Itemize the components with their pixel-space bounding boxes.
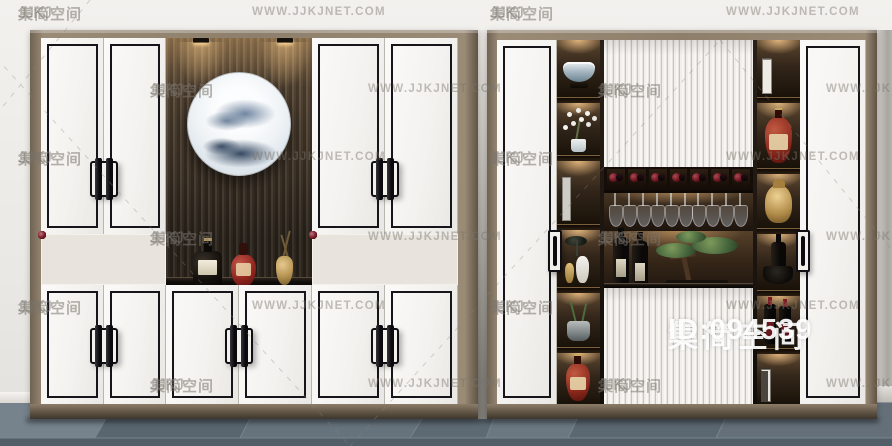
watermark-url-text: WWW.JJKJNET.COM <box>726 151 860 163</box>
watermark-layer: JJKJ 集简空间WWW.JJKJNET.COMJJKJ 集简空间WWW.JJK… <box>0 0 892 446</box>
watermark-url-text: WWW.JJKJNET.COM <box>368 231 502 243</box>
watermark-logo-text: JJKJ 集简空间 <box>598 228 662 249</box>
watermark-logo-text: JJKJ 集简空间 <box>150 228 214 249</box>
watermark-url-text: WWW.JJKJNET.COM <box>252 151 386 163</box>
watermark-url-text: WWW.JJKJNET.COM <box>252 6 386 18</box>
watermark-url-text: WWW.JJKJNET.COM <box>368 378 502 390</box>
watermark-logo-text: JJKJ 集简空间 <box>150 375 214 396</box>
watermark-logo-text: JJKJ 集简空间 <box>150 80 214 101</box>
watermark-logo-text: JJKJ 集简空间 <box>490 3 554 24</box>
watermark-logo-text: JJKJ 集简空间 <box>598 80 662 101</box>
watermark-logo-text: JJKJ 集简空间 <box>490 297 554 318</box>
watermark-logo-text: JJKJ 集简空间 <box>18 148 82 169</box>
watermark-url-text: WWW.JJKJNET.COM <box>368 83 502 95</box>
watermark-url-text: WWW.JJKJNET.COM <box>726 300 860 312</box>
watermark-url-text: WWW.JJKJNET.COM <box>252 300 386 312</box>
watermark-logo-text: JJKJ 集简空间 <box>18 297 82 318</box>
watermark-logo-text: JJKJ 集简空间 <box>18 3 82 24</box>
watermark-url-text: WWW.JJKJNET.COM <box>826 378 892 390</box>
watermark-url-text: WWW.JJKJNET.COM <box>826 231 892 243</box>
product-render-scene: JJKJ 集简空间WWW.JJKJNET.COMJJKJ 集简空间WWW.JJK… <box>0 0 892 446</box>
watermark-logo-text: JJKJ 集简空间 <box>598 375 662 396</box>
watermark-logo-text: JJKJ 集简空间 <box>490 148 554 169</box>
watermark-url-text: WWW.JJKJNET.COM <box>826 83 892 95</box>
watermark-url-text: WWW.JJKJNET.COM <box>726 6 860 18</box>
